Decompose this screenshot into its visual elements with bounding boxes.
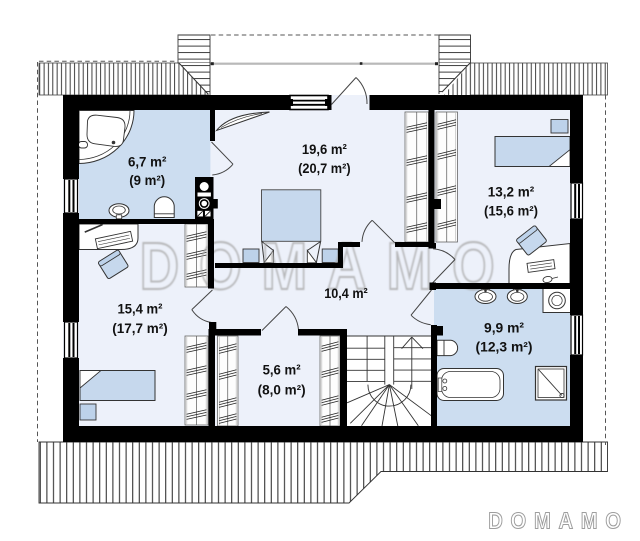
svg-text:15,4 m²: 15,4 m² xyxy=(118,302,163,318)
svg-text:(9 m²): (9 m²) xyxy=(129,173,165,188)
svg-text:6,7 m²: 6,7 m² xyxy=(128,155,167,171)
svg-text:(8,0 m²): (8,0 m²) xyxy=(258,382,306,397)
svg-text:(17,7 m²): (17,7 m²) xyxy=(112,321,168,336)
svg-text:10,4 m²: 10,4 m² xyxy=(324,286,368,302)
svg-text:DOMAMO: DOMAMO xyxy=(488,508,629,534)
svg-text:5,6 m²: 5,6 m² xyxy=(263,362,301,378)
svg-text:13,2 m²: 13,2 m² xyxy=(488,184,535,200)
svg-text:(20,7 m²): (20,7 m²) xyxy=(298,161,351,176)
svg-text:19,6 m²: 19,6 m² xyxy=(302,142,347,158)
svg-text:(12,3 m²): (12,3 m²) xyxy=(476,340,533,355)
svg-text:(15,6 m²): (15,6 m²) xyxy=(484,204,538,219)
svg-text:9,9 m²: 9,9 m² xyxy=(484,321,524,337)
